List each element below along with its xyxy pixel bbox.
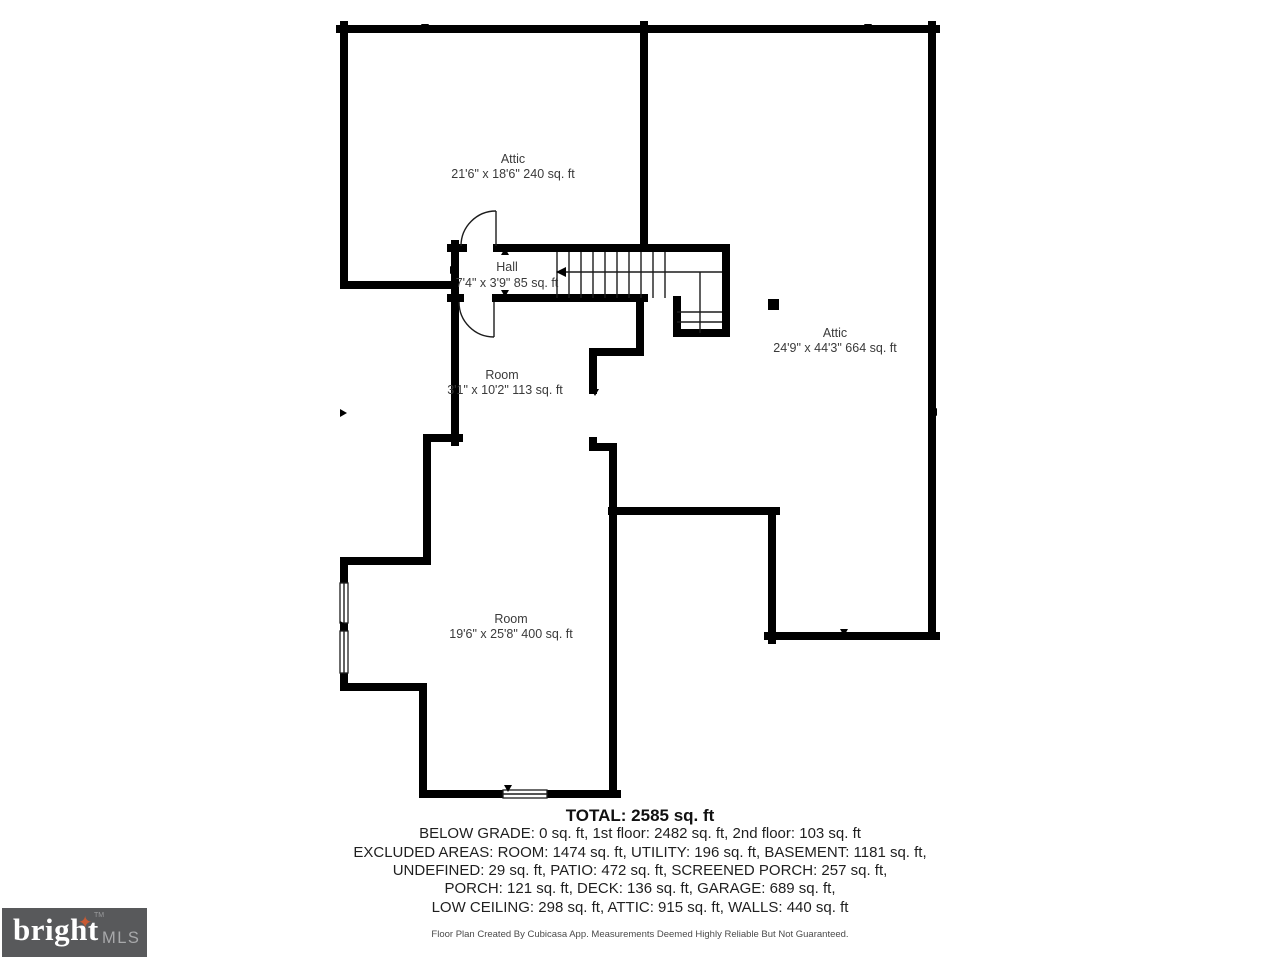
room-dims-middle-room: 3'1" x 10'2" 113 sq. ft bbox=[447, 383, 563, 397]
room-dims-attic-tl: 21'6" x 18'6" 240 sq. ft bbox=[451, 167, 575, 181]
doors bbox=[459, 211, 496, 337]
room-labels: Attic 21'6" x 18'6" 240 sq. ft Hall 7'4"… bbox=[447, 152, 897, 641]
room-dims-attic-right: 24'9" x 44'3" 664 sq. ft bbox=[773, 341, 897, 355]
room-label-attic-tl: Attic bbox=[501, 152, 525, 166]
stair-treads bbox=[557, 252, 665, 298]
logo-star-icon: ✦ bbox=[78, 914, 92, 931]
summary-line-1: BELOW GRADE: 0 sq. ft, 1st floor: 2482 s… bbox=[0, 825, 1280, 843]
wall-top-left-attic bbox=[344, 25, 451, 285]
room-label-bottom-room: Room bbox=[494, 612, 527, 626]
room-label-attic-right: Attic bbox=[823, 326, 847, 340]
logo-trademark: TM bbox=[94, 912, 104, 919]
summary-total: TOTAL: 2585 sq. ft bbox=[0, 806, 1280, 825]
room-dims-bottom-room: 19'6" x 25'8" 400 sq. ft bbox=[449, 627, 573, 641]
tick-left-wall bbox=[340, 409, 347, 417]
brightmls-logo: bright ✦ TM MLS bbox=[2, 908, 147, 957]
dimension-ticks bbox=[340, 24, 937, 792]
disclaimer-text: Floor Plan Created By Cubicasa App. Meas… bbox=[0, 929, 1280, 940]
summary-line-2: EXCLUDED AREAS: ROOM: 1474 sq. ft, UTILI… bbox=[0, 844, 1280, 862]
room-dims-hall: 7'4" x 3'9" 85 sq. ft bbox=[456, 276, 559, 290]
room-label-middle-room: Room bbox=[485, 368, 518, 382]
wall-bottom-room-right bbox=[593, 441, 613, 794]
summary-line-4: PORCH: 121 sq. ft, DECK: 136 sq. ft, GAR… bbox=[0, 880, 1280, 898]
door-room-arc bbox=[459, 302, 494, 337]
room-label-hall: Hall bbox=[496, 260, 518, 274]
summary-line-3: UNDEFINED: 29 sq. ft, PATIO: 472 sq. ft,… bbox=[0, 862, 1280, 880]
column-marker bbox=[768, 299, 779, 310]
walls bbox=[340, 25, 936, 794]
wall-middle-room-right bbox=[593, 302, 640, 390]
wall-hall-top-and-stair-box bbox=[497, 248, 726, 333]
wall-bottom-room-left bbox=[344, 673, 503, 794]
summary-line-5: LOW CEILING: 298 sq. ft, ATTIC: 915 sq. … bbox=[0, 899, 1280, 917]
door-attic-arc bbox=[461, 211, 496, 246]
wall-left-step bbox=[344, 438, 459, 583]
logo-suffix-text: MLS bbox=[102, 929, 140, 948]
